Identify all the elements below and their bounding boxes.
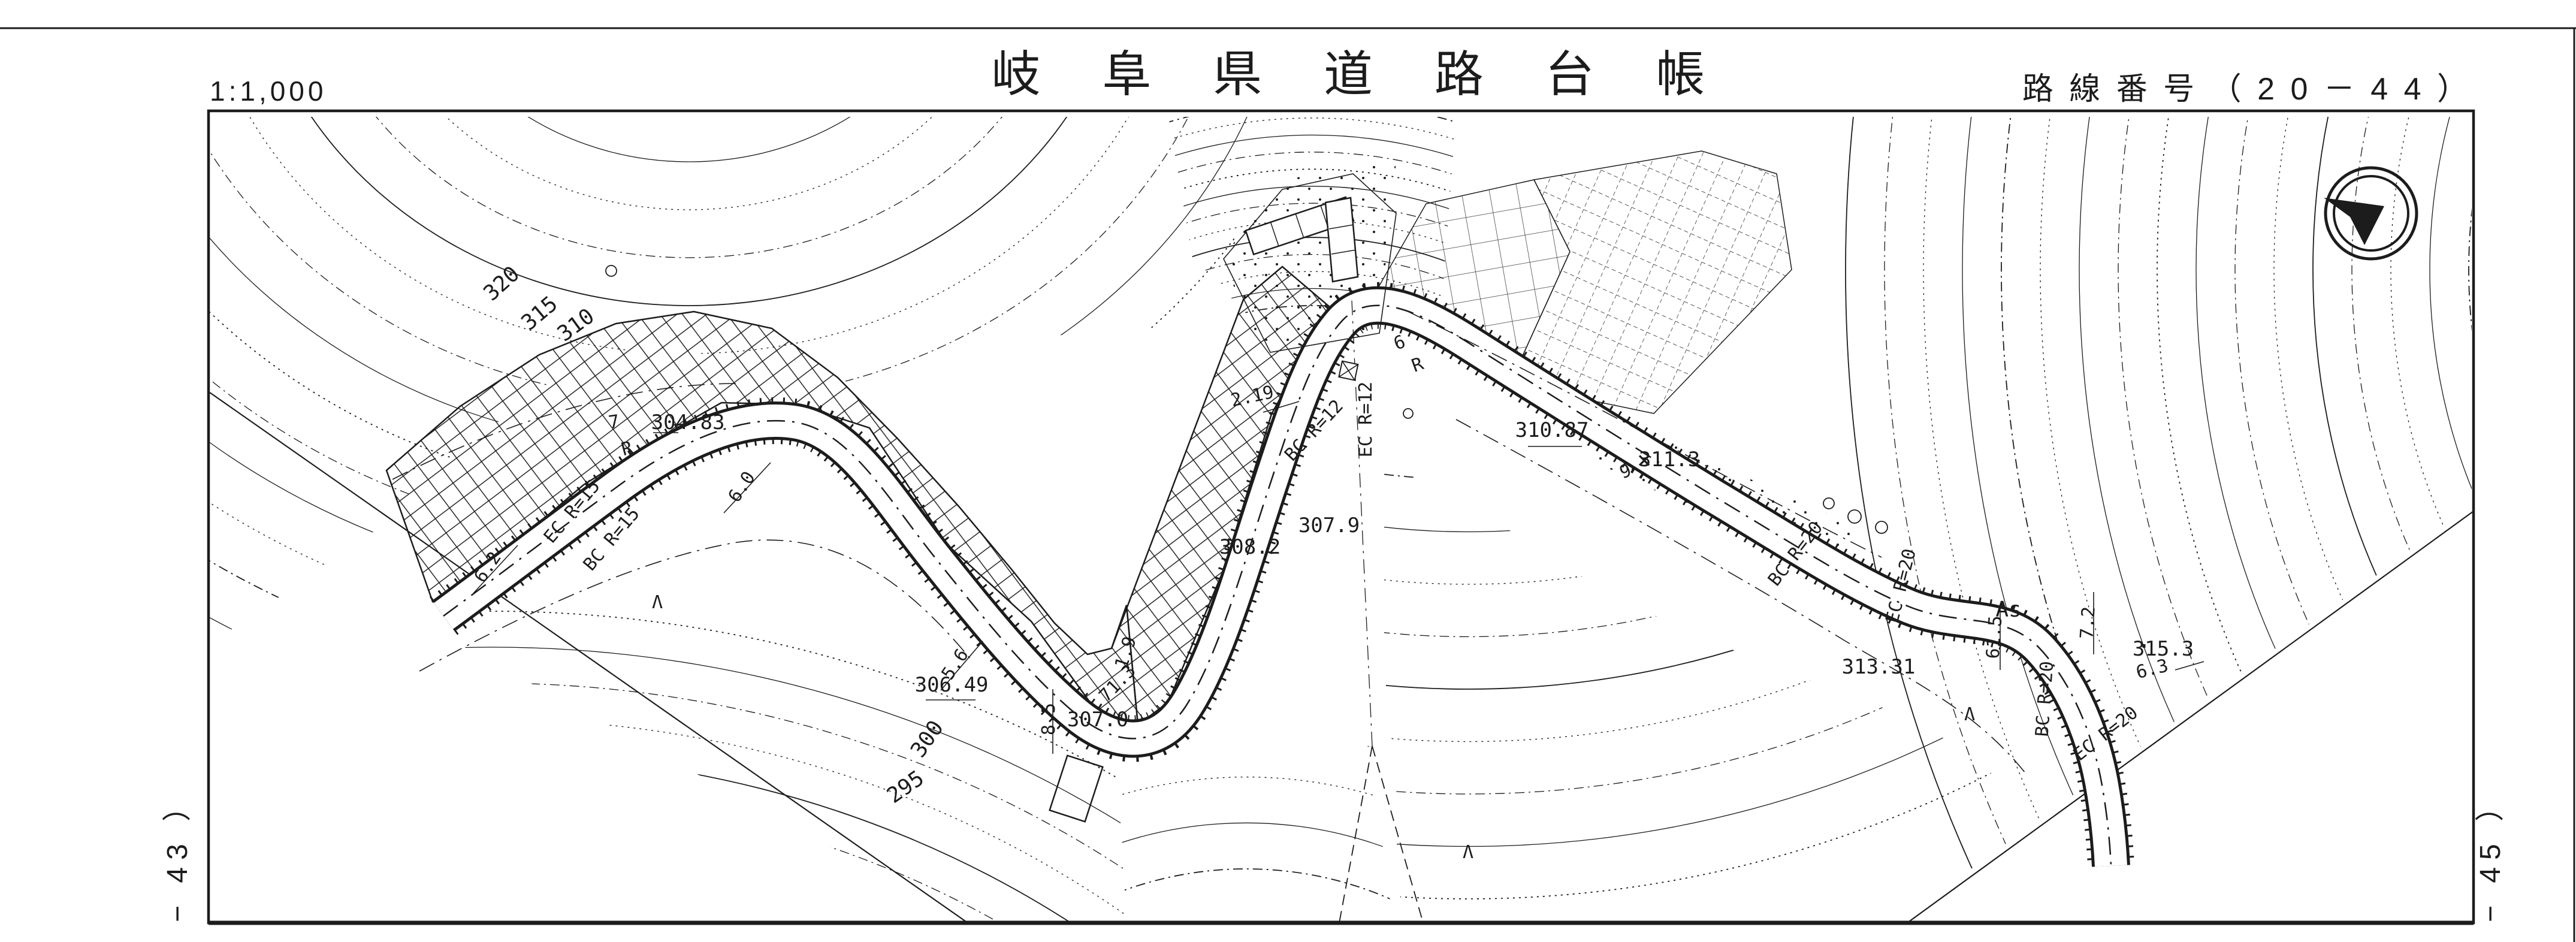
map-label: Λ [1964, 704, 1975, 725]
contour-bundle [749, 731, 1744, 942]
contour-bundle [1846, 0, 2576, 942]
map-label: 313.31 [1842, 655, 1916, 679]
map-label: 307.0 [1067, 708, 1128, 732]
north-arrow-icon [2324, 168, 2417, 259]
map-label: As [1995, 597, 2021, 622]
left-sheet-ref: − 43 ） [162, 786, 194, 922]
building-valley [1050, 756, 1103, 822]
route-number: 路 線 番 号 （ 2 0 － 4 4 ） [2022, 72, 2472, 107]
map-label: EC R=12 [1355, 382, 1376, 457]
benchmark-square [1339, 361, 1358, 381]
sheet-title: 岐 阜 県 道 路 台 帳 [992, 47, 1729, 102]
map-label: 295 [883, 766, 929, 808]
map-scale: 1:1,000 [210, 76, 327, 107]
map-label: 307.9 [1298, 514, 1360, 538]
right-sheet-ref: − 45 ） [2475, 786, 2506, 922]
map-label: 310.87 [1515, 418, 1589, 442]
map-label: R [1409, 353, 1427, 376]
map-label: × [1637, 446, 1651, 474]
map-label: 6 [1391, 331, 1408, 355]
map-label: 8.5 [1038, 703, 1059, 735]
road-ledger-sheet: 1:1,000 岐 阜 県 道 路 台 帳 路 線 番 号 （ 2 0 － 4 … [0, 0, 2576, 942]
map-label: 308.2 [1219, 535, 1281, 559]
map-label: · [2137, 633, 2151, 660]
map-label: 6.0 [724, 467, 759, 506]
map-label: 300 [906, 716, 949, 762]
stream-dashed-lines [1339, 288, 1423, 923]
grid-hatch-terraces [1378, 151, 1792, 413]
map-label: BC R=20 [2032, 660, 2058, 738]
map-label: 320 [479, 261, 524, 306]
map-label: 304.83 [651, 410, 725, 434]
contour-bundle [0, 611, 1651, 942]
dimension-tick [2175, 662, 2204, 670]
dimension-ticks-layer [473, 401, 2204, 754]
map-label: Λ [1463, 842, 1473, 863]
map-label: Λ [652, 592, 663, 613]
road-ledger-map: 1:1,000 岐 阜 県 道 路 台 帳 路 線 番 号 （ 2 0 － 4 … [0, 0, 2576, 942]
map-label: 7.2 [2076, 606, 2100, 639]
